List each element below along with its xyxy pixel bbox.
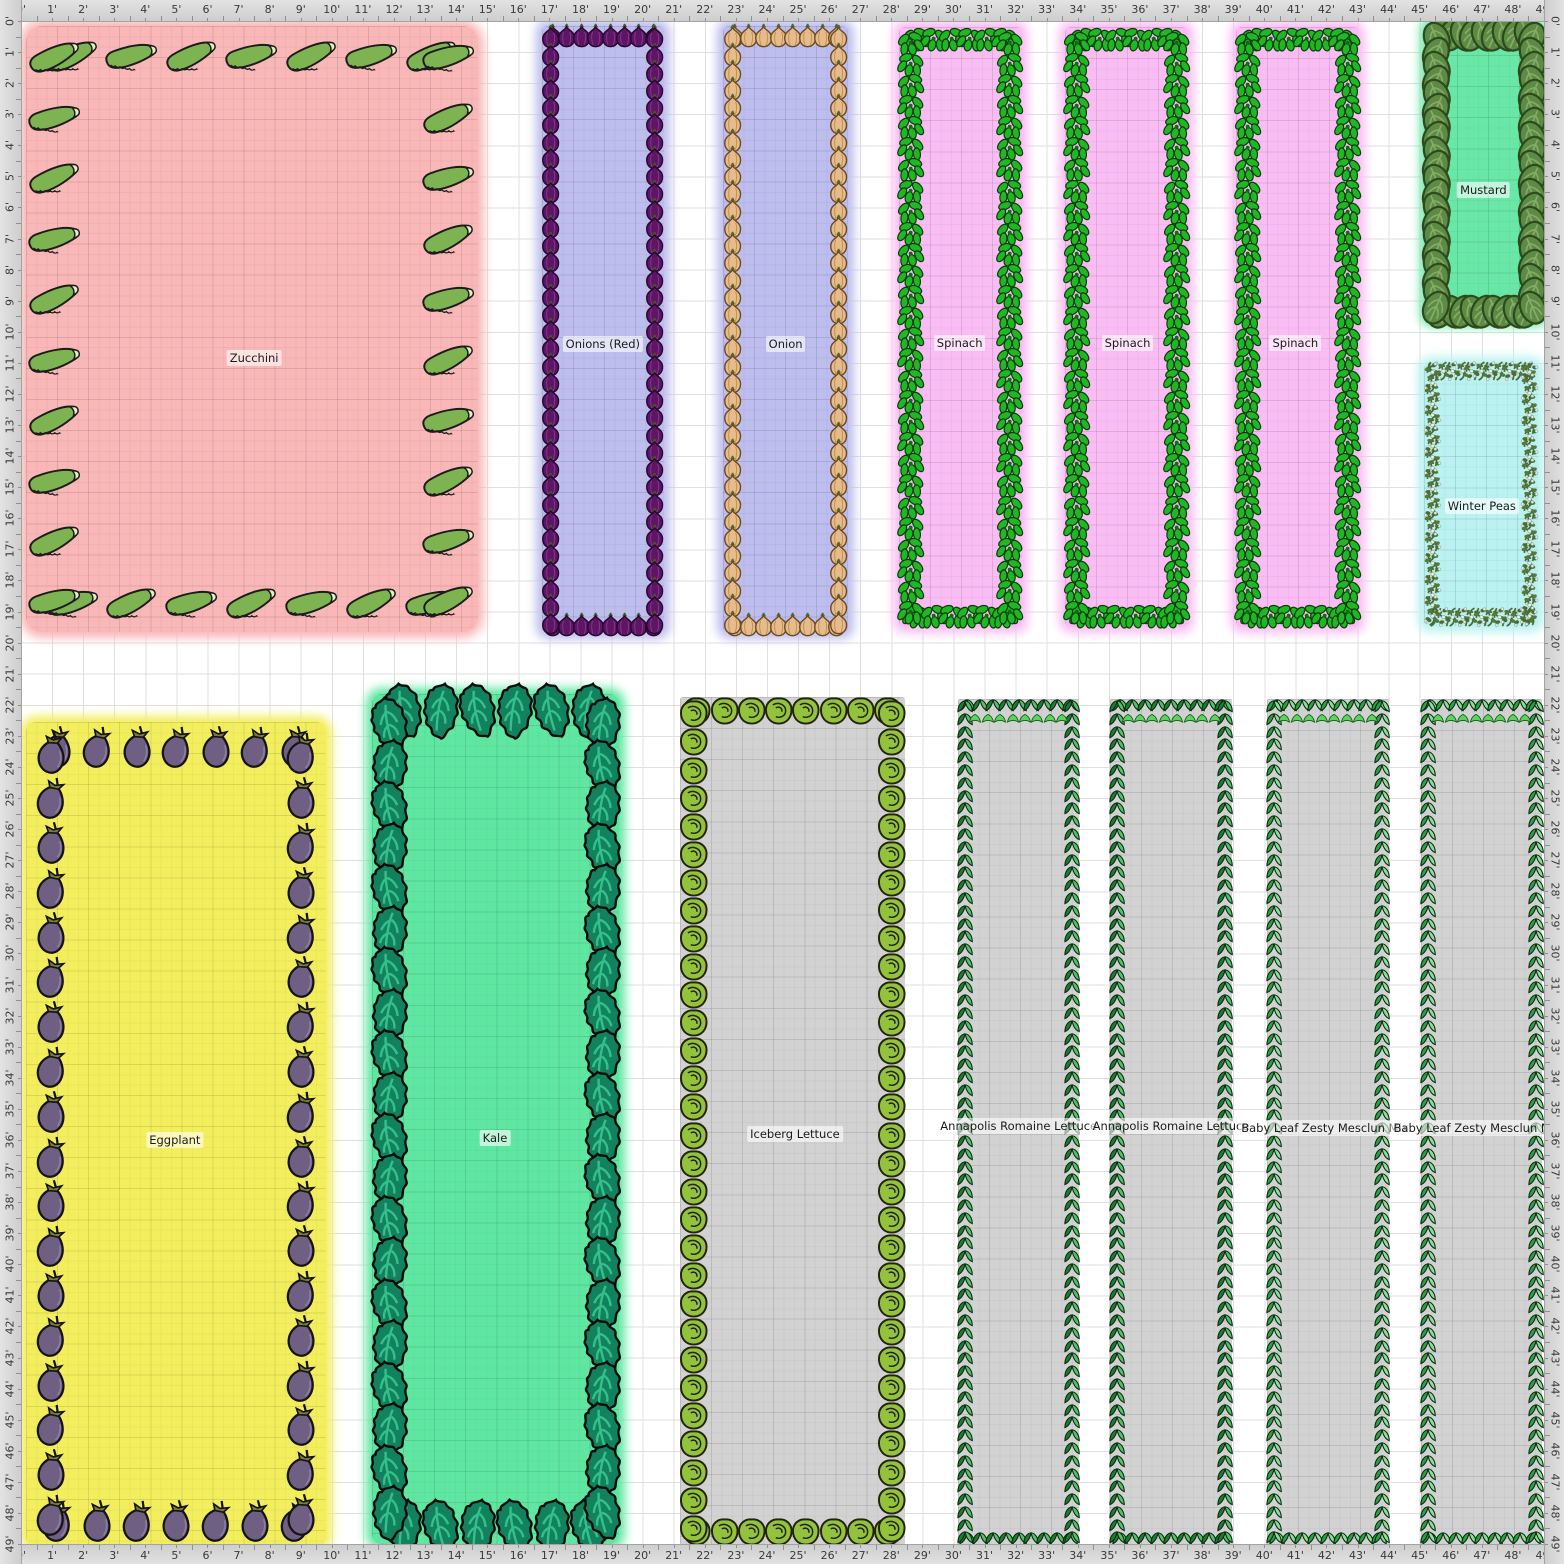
mesclun-mix-icon[interactable]	[1266, 1468, 1282, 1481]
mesclun-mix-icon[interactable]	[1374, 726, 1390, 739]
romaine-lettuce-icon[interactable]	[1217, 1058, 1233, 1071]
mesclun-mix-icon[interactable]	[1266, 994, 1282, 1007]
mesclun-mix-icon[interactable]	[1528, 1288, 1544, 1301]
eggplant-icon[interactable]	[32, 1356, 70, 1403]
mesclun-mix-icon[interactable]	[1528, 1404, 1544, 1417]
lettuce-head-icon[interactable]	[737, 696, 767, 726]
mesclun-mix-icon[interactable]	[1266, 828, 1282, 841]
romaine-lettuce-icon[interactable]	[1064, 854, 1080, 867]
mesclun-mix-icon[interactable]	[1374, 1429, 1390, 1442]
mesclun-mix-icon[interactable]	[1266, 981, 1282, 994]
eggplant-icon[interactable]	[117, 723, 155, 770]
mesclun-mix-icon[interactable]	[1374, 1020, 1390, 1033]
lettuce-head-icon[interactable]	[877, 840, 907, 870]
mesclun-mix-icon[interactable]	[1528, 1058, 1544, 1071]
mesclun-mix-icon[interactable]	[1374, 1404, 1390, 1417]
romaine-lettuce-icon[interactable]	[1109, 1531, 1125, 1544]
mesclun-mix-icon[interactable]	[1528, 1378, 1544, 1391]
lettuce-head-icon[interactable]	[679, 1177, 709, 1207]
romaine-lettuce-icon[interactable]	[1217, 1250, 1233, 1263]
romaine-lettuce-icon[interactable]	[1109, 943, 1125, 956]
lettuce-head-icon[interactable]	[846, 1517, 876, 1547]
mesclun-mix-icon[interactable]	[1528, 879, 1544, 892]
lettuce-head-icon[interactable]	[819, 696, 849, 726]
romaine-lettuce-icon[interactable]	[1109, 1378, 1125, 1391]
lettuce-head-icon[interactable]	[679, 756, 709, 786]
mesclun-mix-icon[interactable]	[1374, 1352, 1390, 1365]
lettuce-head-icon[interactable]	[877, 1008, 907, 1038]
leaf-tuft-icon[interactable]	[1055, 713, 1069, 723]
romaine-lettuce-icon[interactable]	[957, 828, 973, 841]
mesclun-mix-icon[interactable]	[1374, 1531, 1390, 1544]
lettuce-head-icon[interactable]	[679, 1345, 709, 1375]
mesclun-mix-icon[interactable]	[1420, 1455, 1436, 1468]
mesclun-mix-icon[interactable]	[1528, 738, 1544, 751]
romaine-lettuce-icon[interactable]	[1109, 854, 1125, 867]
lettuce-head-icon[interactable]	[679, 699, 709, 729]
romaine-lettuce-icon[interactable]	[1217, 802, 1233, 815]
mesclun-mix-icon[interactable]	[1374, 1455, 1390, 1468]
lettuce-head-icon[interactable]	[679, 1233, 709, 1263]
mesclun-mix-icon[interactable]	[1266, 1237, 1282, 1250]
mesclun-mix-icon[interactable]	[1420, 1020, 1436, 1033]
lettuce-head-icon[interactable]	[877, 1064, 907, 1094]
romaine-lettuce-icon[interactable]	[957, 1045, 973, 1058]
romaine-lettuce-icon[interactable]	[1109, 879, 1125, 892]
romaine-lettuce-icon[interactable]	[1217, 1135, 1233, 1148]
mesclun-mix-icon[interactable]	[1528, 726, 1544, 739]
mesclun-mix-icon[interactable]	[1266, 1161, 1282, 1174]
romaine-lettuce-icon[interactable]	[957, 1429, 973, 1442]
eggplant-icon[interactable]	[32, 1177, 70, 1224]
mesclun-mix-icon[interactable]	[1528, 956, 1544, 969]
romaine-lettuce-icon[interactable]	[1064, 700, 1080, 713]
mesclun-mix-icon[interactable]	[1528, 854, 1544, 867]
mesclun-mix-icon[interactable]	[1374, 1276, 1390, 1289]
romaine-lettuce-icon[interactable]	[1217, 751, 1233, 764]
lettuce-head-icon[interactable]	[819, 1517, 849, 1547]
lettuce-head-icon[interactable]	[877, 1514, 907, 1544]
romaine-lettuce-icon[interactable]	[1109, 790, 1125, 803]
romaine-lettuce-icon[interactable]	[1064, 1416, 1080, 1429]
mesclun-mix-icon[interactable]	[1374, 1084, 1390, 1097]
lettuce-head-icon[interactable]	[877, 924, 907, 954]
romaine-lettuce-icon[interactable]	[1217, 1097, 1233, 1110]
lettuce-head-icon[interactable]	[679, 1317, 709, 1347]
mesclun-mix-icon[interactable]	[1420, 738, 1436, 751]
romaine-lettuce-icon[interactable]	[1217, 1340, 1233, 1353]
romaine-lettuce-icon[interactable]	[1109, 981, 1125, 994]
romaine-lettuce-icon[interactable]	[1064, 969, 1080, 982]
mesclun-mix-icon[interactable]	[1420, 802, 1436, 815]
romaine-lettuce-icon[interactable]	[1064, 1442, 1080, 1455]
romaine-lettuce-icon[interactable]	[957, 1327, 973, 1340]
leaf-tuft-icon[interactable]	[1365, 713, 1379, 723]
romaine-lettuce-icon[interactable]	[957, 1531, 973, 1544]
lettuce-head-icon[interactable]	[679, 924, 709, 954]
lettuce-head-icon[interactable]	[679, 1514, 709, 1544]
romaine-lettuce-icon[interactable]	[1064, 905, 1080, 918]
mesclun-mix-icon[interactable]	[1528, 751, 1544, 764]
romaine-lettuce-icon[interactable]	[1064, 1161, 1080, 1174]
romaine-lettuce-icon[interactable]	[1217, 854, 1233, 867]
romaine-lettuce-icon[interactable]	[1217, 1237, 1233, 1250]
mesclun-mix-icon[interactable]	[1420, 1340, 1436, 1353]
romaine-lettuce-icon[interactable]	[1109, 1391, 1125, 1404]
romaine-lettuce-icon[interactable]	[957, 1301, 973, 1314]
lettuce-head-icon[interactable]	[679, 1289, 709, 1319]
mesclun-mix-icon[interactable]	[1420, 1352, 1436, 1365]
lettuce-head-icon[interactable]	[679, 1205, 709, 1235]
mesclun-mix-icon[interactable]	[1374, 1442, 1390, 1455]
mesclun-mix-icon[interactable]	[1266, 854, 1282, 867]
lettuce-head-icon[interactable]	[877, 952, 907, 982]
mesclun-mix-icon[interactable]	[1528, 918, 1544, 931]
bed-iceberg-lettuce[interactable]	[680, 697, 905, 1546]
lettuce-head-icon[interactable]	[877, 1458, 907, 1488]
eggplant-icon[interactable]	[282, 1491, 320, 1538]
mesclun-mix-icon[interactable]	[1266, 1416, 1282, 1429]
mesclun-mix-icon[interactable]	[1374, 930, 1390, 943]
mesclun-mix-icon[interactable]	[1528, 994, 1544, 1007]
mesclun-mix-icon[interactable]	[1266, 1186, 1282, 1199]
lettuce-head-icon[interactable]	[877, 1373, 907, 1403]
romaine-lettuce-icon[interactable]	[1109, 738, 1125, 751]
romaine-lettuce-icon[interactable]	[1109, 815, 1125, 828]
mesclun-mix-icon[interactable]	[1528, 1263, 1544, 1276]
eggplant-icon[interactable]	[282, 1043, 320, 1090]
romaine-lettuce-icon[interactable]	[1217, 1084, 1233, 1097]
romaine-lettuce-icon[interactable]	[1064, 1033, 1080, 1046]
romaine-lettuce-icon[interactable]	[1217, 1391, 1233, 1404]
lettuce-head-icon[interactable]	[877, 1317, 907, 1347]
lettuce-head-icon[interactable]	[764, 696, 794, 726]
romaine-lettuce-icon[interactable]	[957, 1148, 973, 1161]
romaine-lettuce-icon[interactable]	[1217, 1327, 1233, 1340]
mesclun-mix-icon[interactable]	[1420, 1199, 1436, 1212]
lettuce-head-icon[interactable]	[877, 1149, 907, 1179]
mesclun-mix-icon[interactable]	[1374, 738, 1390, 751]
romaine-lettuce-icon[interactable]	[957, 930, 973, 943]
romaine-lettuce-icon[interactable]	[1217, 1404, 1233, 1417]
romaine-lettuce-icon[interactable]	[1064, 1314, 1080, 1327]
romaine-lettuce-icon[interactable]	[957, 854, 973, 867]
mesclun-mix-icon[interactable]	[1266, 1199, 1282, 1212]
lettuce-head-icon[interactable]	[679, 1092, 709, 1122]
mesclun-mix-icon[interactable]	[1266, 1148, 1282, 1161]
mesclun-mix-icon[interactable]	[1420, 1391, 1436, 1404]
mesclun-mix-icon[interactable]	[1266, 802, 1282, 815]
romaine-lettuce-icon[interactable]	[1109, 1327, 1125, 1340]
romaine-lettuce-icon[interactable]	[1064, 738, 1080, 751]
romaine-lettuce-icon[interactable]	[1217, 905, 1233, 918]
leaf-tuft-icon[interactable]	[1518, 713, 1532, 723]
lettuce-head-icon[interactable]	[710, 696, 740, 726]
lettuce-head-icon[interactable]	[877, 1121, 907, 1151]
mesclun-mix-icon[interactable]	[1420, 994, 1436, 1007]
eggplant-icon[interactable]	[282, 1132, 320, 1179]
romaine-lettuce-icon[interactable]	[1217, 1416, 1233, 1429]
romaine-lettuce-icon[interactable]	[957, 1250, 973, 1263]
mesclun-mix-icon[interactable]	[1420, 866, 1436, 879]
romaine-lettuce-icon[interactable]	[1109, 1135, 1125, 1148]
lettuce-head-icon[interactable]	[679, 1401, 709, 1431]
romaine-lettuce-icon[interactable]	[1064, 1506, 1080, 1519]
mesclun-mix-icon[interactable]	[1528, 1531, 1544, 1544]
romaine-lettuce-icon[interactable]	[1217, 1429, 1233, 1442]
mesclun-mix-icon[interactable]	[1420, 777, 1436, 790]
romaine-lettuce-icon[interactable]	[1109, 1084, 1125, 1097]
mesclun-mix-icon[interactable]	[1266, 1327, 1282, 1340]
mesclun-mix-icon[interactable]	[1420, 892, 1436, 905]
mesclun-mix-icon[interactable]	[1528, 1007, 1544, 1020]
mesclun-mix-icon[interactable]	[1420, 1263, 1436, 1276]
romaine-lettuce-icon[interactable]	[957, 700, 973, 713]
lettuce-head-icon[interactable]	[846, 696, 876, 726]
mesclun-mix-icon[interactable]	[1266, 1288, 1282, 1301]
mesclun-mix-icon[interactable]	[1266, 1084, 1282, 1097]
mesclun-mix-icon[interactable]	[1420, 1378, 1436, 1391]
mesclun-mix-icon[interactable]	[1420, 1250, 1436, 1263]
lettuce-head-icon[interactable]	[679, 896, 709, 926]
romaine-lettuce-icon[interactable]	[1109, 994, 1125, 1007]
mesclun-mix-icon[interactable]	[1420, 1314, 1436, 1327]
mesclun-mix-icon[interactable]	[1374, 892, 1390, 905]
mesclun-mix-icon[interactable]	[1420, 1288, 1436, 1301]
mesclun-mix-icon[interactable]	[1266, 726, 1282, 739]
romaine-lettuce-icon[interactable]	[1217, 1212, 1233, 1225]
romaine-lettuce-icon[interactable]	[957, 1455, 973, 1468]
eggplant-icon[interactable]	[282, 864, 320, 911]
mesclun-mix-icon[interactable]	[1528, 1314, 1544, 1327]
mesclun-mix-icon[interactable]	[1374, 777, 1390, 790]
lettuce-head-icon[interactable]	[679, 1121, 709, 1151]
romaine-lettuce-icon[interactable]	[957, 841, 973, 854]
mesclun-mix-icon[interactable]	[1420, 700, 1436, 713]
romaine-lettuce-icon[interactable]	[1064, 1288, 1080, 1301]
romaine-lettuce-icon[interactable]	[1064, 981, 1080, 994]
lettuce-head-icon[interactable]	[679, 1036, 709, 1066]
romaine-lettuce-icon[interactable]	[1109, 1237, 1125, 1250]
romaine-lettuce-icon[interactable]	[1064, 1058, 1080, 1071]
romaine-lettuce-icon[interactable]	[957, 1237, 973, 1250]
mesclun-mix-icon[interactable]	[1374, 1480, 1390, 1493]
romaine-lettuce-icon[interactable]	[1217, 1378, 1233, 1391]
lettuce-head-icon[interactable]	[791, 1517, 821, 1547]
romaine-lettuce-icon[interactable]	[957, 1033, 973, 1046]
romaine-lettuce-icon[interactable]	[957, 1007, 973, 1020]
romaine-lettuce-icon[interactable]	[1109, 1416, 1125, 1429]
mesclun-mix-icon[interactable]	[1374, 1237, 1390, 1250]
leaf-tuft-icon[interactable]	[1208, 713, 1222, 723]
mesclun-mix-icon[interactable]	[1420, 918, 1436, 931]
romaine-lettuce-icon[interactable]	[1109, 1071, 1125, 1084]
mesclun-mix-icon[interactable]	[1420, 1084, 1436, 1097]
romaine-lettuce-icon[interactable]	[1217, 700, 1233, 713]
lettuce-head-icon[interactable]	[877, 1233, 907, 1263]
mesclun-mix-icon[interactable]	[1374, 994, 1390, 1007]
romaine-lettuce-icon[interactable]	[1217, 930, 1233, 943]
romaine-lettuce-icon[interactable]	[1109, 1199, 1125, 1212]
mesclun-mix-icon[interactable]	[1420, 1135, 1436, 1148]
mesclun-mix-icon[interactable]	[1266, 1212, 1282, 1225]
romaine-lettuce-icon[interactable]	[1064, 1519, 1080, 1532]
romaine-lettuce-icon[interactable]	[1064, 1097, 1080, 1110]
romaine-lettuce-icon[interactable]	[957, 1161, 973, 1174]
romaine-lettuce-icon[interactable]	[1217, 1263, 1233, 1276]
romaine-lettuce-icon[interactable]	[1064, 1173, 1080, 1186]
mesclun-mix-icon[interactable]	[1528, 790, 1544, 803]
romaine-lettuce-icon[interactable]	[1109, 1161, 1125, 1174]
romaine-lettuce-icon[interactable]	[957, 1020, 973, 1033]
mesclun-mix-icon[interactable]	[1420, 930, 1436, 943]
romaine-lettuce-icon[interactable]	[957, 1365, 973, 1378]
mesclun-mix-icon[interactable]	[1266, 905, 1282, 918]
mesclun-mix-icon[interactable]	[1528, 828, 1544, 841]
romaine-lettuce-icon[interactable]	[957, 943, 973, 956]
mesclun-mix-icon[interactable]	[1374, 905, 1390, 918]
romaine-lettuce-icon[interactable]	[1109, 1455, 1125, 1468]
romaine-lettuce-icon[interactable]	[1109, 777, 1125, 790]
romaine-lettuce-icon[interactable]	[957, 1391, 973, 1404]
mesclun-mix-icon[interactable]	[1528, 815, 1544, 828]
romaine-lettuce-icon[interactable]	[1217, 1173, 1233, 1186]
mesclun-mix-icon[interactable]	[1420, 905, 1436, 918]
lettuce-head-icon[interactable]	[877, 812, 907, 842]
mesclun-mix-icon[interactable]	[1420, 1225, 1436, 1238]
eggplant-icon[interactable]	[32, 998, 70, 1045]
lettuce-head-icon[interactable]	[877, 1092, 907, 1122]
romaine-lettuce-icon[interactable]	[1064, 1225, 1080, 1238]
mesclun-mix-icon[interactable]	[1420, 1237, 1436, 1250]
lettuce-head-icon[interactable]	[791, 696, 821, 726]
mesclun-mix-icon[interactable]	[1528, 892, 1544, 905]
mesclun-mix-icon[interactable]	[1374, 1288, 1390, 1301]
mesclun-mix-icon[interactable]	[1528, 969, 1544, 982]
romaine-lettuce-icon[interactable]	[1217, 1161, 1233, 1174]
mesclun-mix-icon[interactable]	[1420, 879, 1436, 892]
lettuce-head-icon[interactable]	[679, 868, 709, 898]
mesclun-mix-icon[interactable]	[1374, 764, 1390, 777]
romaine-lettuce-icon[interactable]	[1064, 1365, 1080, 1378]
mesclun-mix-icon[interactable]	[1266, 943, 1282, 956]
mesclun-mix-icon[interactable]	[1266, 1442, 1282, 1455]
eggplant-icon[interactable]	[282, 1222, 320, 1269]
lettuce-head-icon[interactable]	[679, 1486, 709, 1516]
romaine-lettuce-icon[interactable]	[957, 1058, 973, 1071]
romaine-lettuce-icon[interactable]	[957, 1314, 973, 1327]
romaine-lettuce-icon[interactable]	[1217, 1455, 1233, 1468]
mesclun-mix-icon[interactable]	[1374, 1301, 1390, 1314]
romaine-lettuce-icon[interactable]	[1064, 802, 1080, 815]
lettuce-head-icon[interactable]	[679, 727, 709, 757]
lettuce-head-icon[interactable]	[737, 1517, 767, 1547]
mesclun-mix-icon[interactable]	[1266, 700, 1282, 713]
romaine-lettuce-icon[interactable]	[1109, 1058, 1125, 1071]
romaine-lettuce-icon[interactable]	[957, 1097, 973, 1110]
mesclun-mix-icon[interactable]	[1374, 1212, 1390, 1225]
romaine-lettuce-icon[interactable]	[1217, 1480, 1233, 1493]
mesclun-mix-icon[interactable]	[1528, 866, 1544, 879]
mesclun-mix-icon[interactable]	[1266, 1519, 1282, 1532]
romaine-lettuce-icon[interactable]	[1064, 815, 1080, 828]
romaine-lettuce-icon[interactable]	[957, 777, 973, 790]
mesclun-mix-icon[interactable]	[1420, 815, 1436, 828]
mesclun-mix-icon[interactable]	[1420, 1531, 1436, 1544]
mesclun-mix-icon[interactable]	[1266, 764, 1282, 777]
romaine-lettuce-icon[interactable]	[1109, 764, 1125, 777]
lettuce-head-icon[interactable]	[877, 1289, 907, 1319]
romaine-lettuce-icon[interactable]	[1109, 1276, 1125, 1289]
romaine-lettuce-icon[interactable]	[1109, 1097, 1125, 1110]
romaine-lettuce-icon[interactable]	[1217, 738, 1233, 751]
mesclun-mix-icon[interactable]	[1528, 1020, 1544, 1033]
mesclun-mix-icon[interactable]	[1374, 854, 1390, 867]
romaine-lettuce-icon[interactable]	[1109, 1468, 1125, 1481]
mesclun-mix-icon[interactable]	[1374, 1225, 1390, 1238]
mesclun-mix-icon[interactable]	[1528, 905, 1544, 918]
romaine-lettuce-icon[interactable]	[1217, 981, 1233, 994]
lettuce-head-icon[interactable]	[877, 1401, 907, 1431]
romaine-lettuce-icon[interactable]	[1064, 828, 1080, 841]
romaine-lettuce-icon[interactable]	[957, 905, 973, 918]
romaine-lettuce-icon[interactable]	[1064, 1199, 1080, 1212]
mesclun-mix-icon[interactable]	[1266, 969, 1282, 982]
mesclun-mix-icon[interactable]	[1374, 1097, 1390, 1110]
romaine-lettuce-icon[interactable]	[1064, 1020, 1080, 1033]
romaine-lettuce-icon[interactable]	[957, 738, 973, 751]
romaine-lettuce-icon[interactable]	[1064, 943, 1080, 956]
romaine-lettuce-icon[interactable]	[1064, 726, 1080, 739]
mesclun-mix-icon[interactable]	[1528, 1455, 1544, 1468]
mesclun-mix-icon[interactable]	[1266, 1404, 1282, 1417]
romaine-lettuce-icon[interactable]	[1064, 1391, 1080, 1404]
mesclun-mix-icon[interactable]	[1528, 930, 1544, 943]
mesclun-mix-icon[interactable]	[1528, 1135, 1544, 1148]
mesclun-mix-icon[interactable]	[1266, 866, 1282, 879]
romaine-lettuce-icon[interactable]	[957, 1071, 973, 1084]
lettuce-head-icon[interactable]	[877, 784, 907, 814]
romaine-lettuce-icon[interactable]	[1217, 892, 1233, 905]
mesclun-mix-icon[interactable]	[1420, 1058, 1436, 1071]
mesclun-mix-icon[interactable]	[1420, 790, 1436, 803]
mesclun-mix-icon[interactable]	[1528, 1391, 1544, 1404]
lettuce-head-icon[interactable]	[877, 1429, 907, 1459]
mesclun-mix-icon[interactable]	[1374, 1058, 1390, 1071]
romaine-lettuce-icon[interactable]	[1064, 1007, 1080, 1020]
romaine-lettuce-icon[interactable]	[957, 956, 973, 969]
romaine-lettuce-icon[interactable]	[1217, 1442, 1233, 1455]
romaine-lettuce-icon[interactable]	[957, 1186, 973, 1199]
lettuce-head-icon[interactable]	[679, 1373, 709, 1403]
mesclun-mix-icon[interactable]	[1420, 854, 1436, 867]
romaine-lettuce-icon[interactable]	[1109, 969, 1125, 982]
romaine-lettuce-icon[interactable]	[1217, 994, 1233, 1007]
romaine-lettuce-icon[interactable]	[1064, 1378, 1080, 1391]
lettuce-head-icon[interactable]	[877, 1345, 907, 1375]
romaine-lettuce-icon[interactable]	[1217, 815, 1233, 828]
romaine-lettuce-icon[interactable]	[1064, 879, 1080, 892]
bed-zucchini[interactable]	[26, 26, 478, 632]
romaine-lettuce-icon[interactable]	[1064, 1493, 1080, 1506]
mesclun-mix-icon[interactable]	[1420, 981, 1436, 994]
romaine-lettuce-icon[interactable]	[957, 764, 973, 777]
mesclun-mix-icon[interactable]	[1528, 1033, 1544, 1046]
mesclun-mix-icon[interactable]	[1374, 802, 1390, 815]
romaine-lettuce-icon[interactable]	[1217, 841, 1233, 854]
romaine-lettuce-icon[interactable]	[1109, 1033, 1125, 1046]
mesclun-mix-icon[interactable]	[1374, 790, 1390, 803]
